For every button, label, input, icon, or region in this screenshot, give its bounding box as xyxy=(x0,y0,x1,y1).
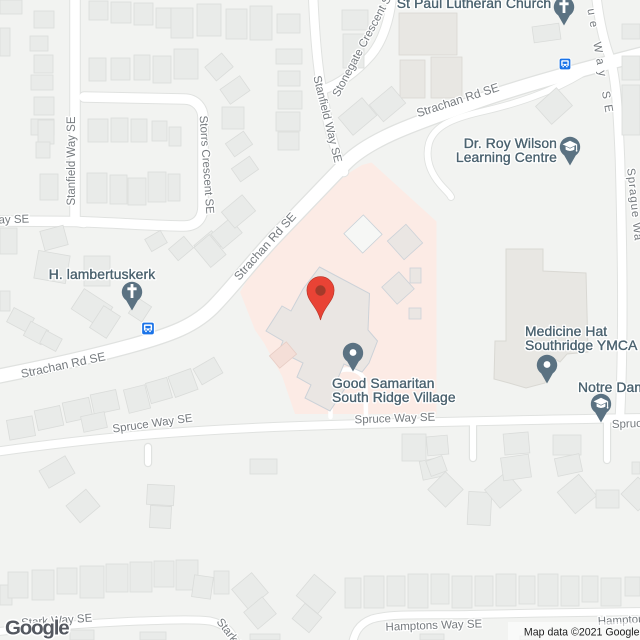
svg-text:Map data ©2021 Google: Map data ©2021 Google xyxy=(524,627,640,639)
svg-text:Google: Google xyxy=(5,617,69,640)
svg-text:St Paul Lutheran Church: St Paul Lutheran Church xyxy=(397,0,551,11)
svg-text:South Ridge Village: South Ridge Village xyxy=(332,389,456,405)
svg-text:H. lambertuskerk: H. lambertuskerk xyxy=(49,266,156,282)
svg-text:ay SE: ay SE xyxy=(0,213,30,226)
svg-text:Learning Centre: Learning Centre xyxy=(456,149,557,165)
svg-text:Notre Dame: Notre Dame xyxy=(578,379,640,395)
svg-text:Stanfield Way SE: Stanfield Way SE xyxy=(66,116,78,205)
svg-text:Southridge YMCA: Southridge YMCA xyxy=(525,337,638,353)
svg-text:Spruce Wa: Spruce Wa xyxy=(612,417,640,431)
